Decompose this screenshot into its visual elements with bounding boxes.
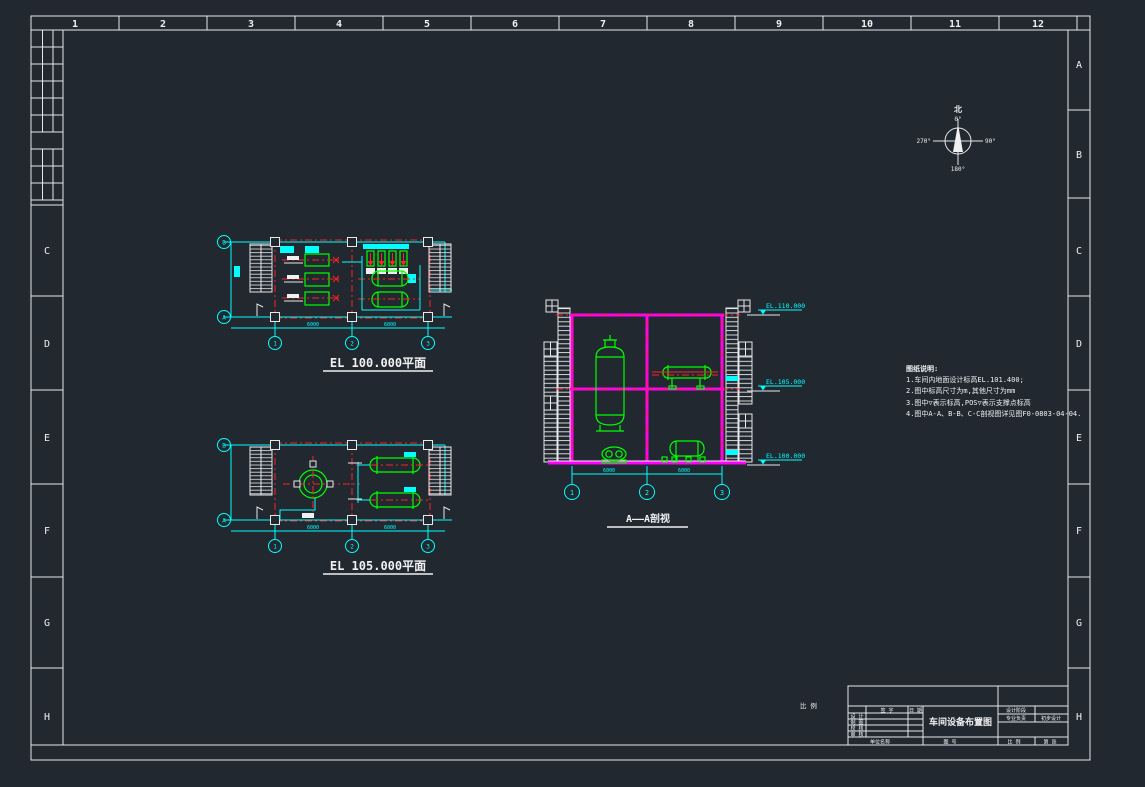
north-compass: 北 0° 90° 180° 270°: [917, 104, 996, 173]
compass-north-label: 北: [954, 104, 962, 114]
row-label: F: [44, 526, 50, 537]
platform: [404, 452, 416, 457]
col-label: 5: [424, 19, 430, 30]
col-label: 11: [949, 19, 961, 30]
title-block-bottom: 单位名称 图 号 比 例 第 张: [870, 737, 1057, 746]
role-label: 设 计: [850, 713, 863, 720]
row-label: H: [44, 712, 50, 723]
dim-text: 6000: [384, 322, 396, 328]
col-label: 10: [861, 19, 873, 30]
col-label: 7: [600, 19, 606, 30]
elevation-label: EL.105.000: [766, 378, 805, 386]
top-column-ticks: [119, 16, 1077, 30]
note-line: 3.图中▽表示标高,POS▽表示支撑点标高: [906, 398, 1031, 407]
discipline-label: 专业负责: [1006, 715, 1026, 722]
axis-bubble-label: 3: [426, 544, 430, 551]
dim-text: 6000: [678, 468, 690, 474]
axis-bubble-label: 3: [720, 489, 724, 497]
stair-hatch-right: [429, 244, 451, 292]
pump-skids: [282, 254, 342, 305]
date-header: 日 期: [909, 708, 922, 714]
title-block: 签 字 日 期 设 计 制 图 校 核 审 核 车间设备布置图 设计阶段 专业负…: [848, 686, 1068, 746]
row-label: D: [44, 339, 50, 350]
column-numbers: 1 2 3 4 5 6 7 8 9 10 11 12: [72, 19, 1044, 30]
section-wall-hatch-right: [726, 300, 752, 462]
row-label: C: [44, 246, 50, 257]
platform: [280, 246, 294, 253]
cad-drawing-canvas: 1 2 3 4 5 6 7 8 9 10 11 12: [0, 0, 1145, 787]
pad: [302, 513, 314, 518]
plan-el105-caption: EL 105.000平面: [330, 559, 426, 573]
plan-el105: B A 1 2 3 6000 6000 EL 105.000平面: [218, 439, 453, 575]
notes-title: 图纸说明:: [906, 364, 938, 373]
note-line: 4.图中A-A、B-B、C-C剖视图详见图F0-0803-04-04.: [906, 409, 1081, 418]
role-label: 审 核: [850, 731, 863, 738]
axis-bubble-label: 2: [350, 341, 354, 348]
stair-arrow-icon: [257, 304, 263, 316]
section-caption: A——A剖视: [626, 512, 670, 525]
row-label: G: [44, 618, 50, 629]
row-label: A: [1076, 60, 1082, 71]
stage-label: 设计阶段: [1006, 707, 1026, 714]
stair-arrow-icon: [257, 507, 263, 519]
stair-arrow-icon: [444, 304, 450, 316]
dim-text: 6000: [307, 525, 319, 531]
col-label: 4: [336, 19, 342, 30]
axis-bubble-label: A: [222, 518, 226, 525]
col-label: 8: [688, 19, 694, 30]
bottom-cell: 单位名称: [870, 739, 890, 746]
tank-plan-view: [283, 456, 360, 512]
drawing-notes: 图纸说明: 1.车间内地面设计标高EL.101.400; 2.图中标高尺寸为m,…: [906, 364, 1081, 418]
col-label: 6: [512, 19, 518, 30]
dim-text: 6000: [307, 322, 319, 328]
col-label: 2: [160, 19, 166, 30]
plan-el100-caption: EL 100.000平面: [330, 356, 426, 370]
dim-text: 6000: [384, 525, 396, 531]
axis-bubbles-section: 1 2 3: [565, 485, 730, 500]
row-label: E: [44, 433, 50, 444]
note-line: 1.车间内地面设计标高EL.101.400;: [906, 375, 1024, 384]
col-label: 1: [72, 19, 78, 30]
vertical-vessel: [596, 335, 624, 431]
section-dimensions: 6000 6000: [572, 466, 722, 484]
axis-bubble-label: 1: [570, 489, 574, 497]
revision-grid: [31, 30, 63, 205]
role-label: 校 核: [850, 725, 863, 732]
compass-deg90: 90°: [985, 138, 996, 145]
row-label: B: [1076, 150, 1082, 161]
stair-arrow-icon: [444, 507, 450, 519]
row-label: D: [1076, 339, 1082, 350]
compass-deg0: 0°: [954, 116, 961, 123]
drawing-svg: 1 2 3 4 5 6 7 8 9 10 11 12: [0, 0, 1145, 787]
note-line: 2.图中标高尺寸为m,其他尺寸为mm: [906, 386, 1015, 395]
col-label: 9: [776, 19, 782, 30]
compass-deg270: 270°: [917, 138, 931, 145]
scale-note: 比 例: [800, 701, 817, 710]
drawing-title: 车间设备布置图: [929, 716, 992, 728]
axis-bubble-label: 1: [273, 341, 277, 348]
right-row-letters: A B C D E F G H: [1076, 60, 1082, 723]
bottom-cell: 图 号: [943, 740, 956, 746]
row-label: C: [1076, 246, 1082, 257]
left-row-band: [31, 296, 63, 668]
col-label: 3: [248, 19, 254, 30]
ground-vessel: [662, 441, 705, 462]
platform: [404, 487, 416, 492]
plan-el100: B A 1 2 3 6000 6000 EL 100.000平面: [218, 236, 453, 372]
stair-hatch-right: [429, 447, 451, 495]
axis-bubble-label: 2: [645, 489, 649, 497]
platform: [305, 246, 319, 253]
row-label: H: [1076, 712, 1082, 723]
sign-header: 签 字: [880, 707, 893, 714]
platform: [363, 244, 409, 249]
axis-bubble-label: A: [222, 315, 226, 322]
stair-hatch-left: [250, 447, 272, 495]
dim-text: 6000: [603, 468, 615, 474]
row-label: G: [1076, 618, 1082, 629]
elevation-label: EL.100.000: [766, 452, 805, 460]
axis-bubble-label: 2: [350, 544, 354, 551]
platform: [234, 266, 240, 277]
stage-value: 初步设计: [1041, 715, 1061, 722]
right-row-band: [1068, 110, 1090, 668]
col-label: 12: [1032, 19, 1044, 30]
axis-bubble-label: B: [222, 443, 226, 450]
compass-deg180: 180°: [951, 166, 965, 173]
role-label: 制 图: [850, 719, 863, 726]
row-label: F: [1076, 526, 1082, 537]
row-label: E: [1076, 433, 1082, 444]
upper-exchanger: [652, 365, 718, 389]
bottom-cell: 比 例: [1007, 739, 1020, 746]
elevation-label: EL.110.000: [766, 302, 805, 310]
section-wall-hatch-left: [544, 300, 570, 462]
stair-hatch-left: [250, 244, 272, 292]
axis-bubble-label: B: [222, 240, 226, 247]
axis-bubble-label: 3: [426, 341, 430, 348]
horizontal-vessels: [356, 456, 430, 509]
stage-cells: 设计阶段 专业负责 初步设计: [998, 706, 1068, 722]
elevation-markers: EL.110.000 EL.105.000 EL.100.000: [747, 302, 805, 465]
section-aa: 6000 6000 1 2 3 EL.110.000 EL.105.000 EL…: [544, 300, 805, 527]
bottom-cell: 第 张: [1043, 739, 1056, 746]
structural-frame: [548, 314, 746, 463]
axis-bubble-label: 1: [273, 544, 277, 551]
